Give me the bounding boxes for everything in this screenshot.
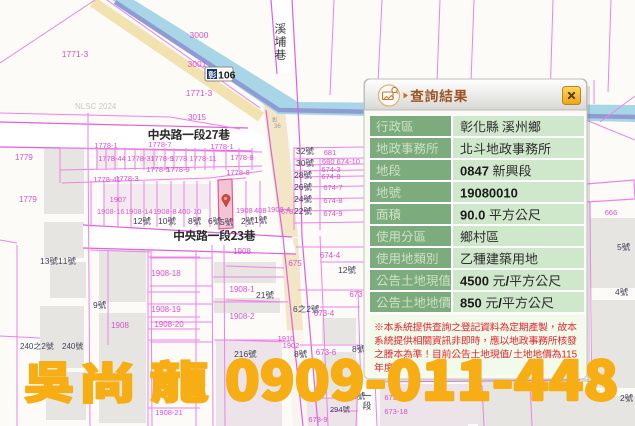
- svg-text:1908-18: 1908-18: [151, 269, 181, 278]
- svg-text:673: 673: [349, 290, 363, 299]
- svg-text:4: 4: [299, 194, 304, 204]
- svg-text:1778-44: 1778-44: [98, 154, 126, 163]
- svg-text:2: 2: [41, 342, 46, 351]
- svg-text:1908-2: 1908-2: [230, 312, 255, 321]
- svg-text:1908-16: 1908-16: [97, 207, 125, 216]
- svg-text:1778-3: 1778-3: [115, 174, 138, 183]
- svg-text:3001: 3001: [188, 59, 207, 69]
- svg-text:673-9: 673-9: [308, 415, 327, 424]
- svg-text:1908-21: 1908-21: [155, 408, 183, 417]
- svg-text:3000: 3000: [190, 30, 209, 40]
- svg-text:673-4: 673-4: [314, 309, 335, 318]
- svg-text:1779: 1779: [19, 195, 37, 204]
- svg-text:1778-1: 1778-1: [94, 141, 117, 150]
- svg-text:674-8: 674-8: [323, 196, 342, 205]
- svg-text:0: 0: [301, 158, 306, 168]
- svg-text:2: 2: [620, 393, 625, 403]
- svg-text:0847: 0847: [460, 164, 493, 179]
- svg-text:5: 5: [617, 242, 622, 252]
- svg-text:400-10: 400-10: [178, 207, 201, 216]
- svg-text:6: 6: [299, 182, 304, 192]
- svg-text:1778-9: 1778-9: [166, 165, 189, 174]
- svg-text:1778-11: 1778-11: [190, 154, 217, 163]
- svg-text:674-4: 674-4: [320, 251, 341, 260]
- svg-text:1778-7: 1778-7: [148, 140, 171, 149]
- svg-text:408: 408: [254, 206, 267, 215]
- svg-text:1908-1: 1908-1: [230, 285, 255, 294]
- svg-text:1: 1: [63, 256, 68, 266]
- svg-text:8: 8: [188, 216, 193, 226]
- svg-text:1907: 1907: [110, 195, 127, 204]
- svg-text:666: 666: [605, 208, 618, 217]
- svg-text:850: 850: [460, 296, 485, 311]
- svg-text:3015: 3015: [188, 113, 206, 122]
- svg-text:/: /: [509, 350, 512, 361]
- svg-text:NLSC 2024: NLSC 2024: [75, 102, 117, 111]
- svg-text:8: 8: [299, 170, 304, 180]
- svg-text:678: 678: [281, 207, 294, 216]
- svg-text:1: 1: [261, 290, 266, 300]
- svg-text:2: 2: [301, 146, 306, 156]
- svg-text:674-9: 674-9: [323, 209, 342, 218]
- svg-text:90.0: 90.0: [460, 208, 489, 223]
- svg-text:1908-19: 1908-19: [151, 305, 181, 314]
- svg-text:1908: 1908: [153, 207, 170, 216]
- svg-text:3: 3: [45, 256, 50, 266]
- svg-text:1908: 1908: [236, 206, 253, 215]
- svg-text:4: 4: [338, 405, 342, 414]
- svg-text:674-8: 674-8: [321, 172, 340, 181]
- svg-text:1778: 1778: [171, 154, 188, 163]
- svg-text:1771-3: 1771-3: [186, 88, 213, 98]
- svg-text:0: 0: [71, 342, 76, 351]
- svg-text:1: 1: [254, 215, 259, 225]
- svg-text:675: 675: [288, 259, 302, 268]
- svg-text:673-6: 673-6: [316, 348, 337, 357]
- svg-text:1908: 1908: [233, 247, 251, 256]
- svg-text:6: 6: [293, 304, 298, 314]
- svg-text:8: 8: [352, 344, 357, 354]
- svg-text:1908-14: 1908-14: [125, 207, 153, 216]
- svg-text:106: 106: [218, 70, 236, 82]
- svg-text:2: 2: [306, 304, 311, 314]
- svg-text:2: 2: [343, 265, 348, 275]
- svg-text:674-7: 674-7: [323, 183, 342, 192]
- svg-text:1771-3: 1771-3: [62, 49, 89, 59]
- svg-text:0: 0: [29, 342, 34, 351]
- svg-text:1778-1: 1778-1: [210, 142, 233, 151]
- svg-text:2: 2: [299, 206, 304, 216]
- svg-text:9: 9: [93, 300, 98, 310]
- svg-text:1778-8: 1778-8: [230, 153, 253, 162]
- svg-text:1908-20: 1908-20: [154, 320, 184, 329]
- svg-text:/: /: [498, 296, 502, 311]
- svg-text:673-18: 673-18: [384, 407, 407, 416]
- svg-text:2: 2: [241, 216, 246, 226]
- svg-text:681: 681: [324, 148, 337, 157]
- svg-text:4500: 4500: [460, 274, 493, 289]
- svg-text:彰: 彰: [272, 116, 278, 124]
- svg-text:-8: -8: [170, 207, 177, 216]
- svg-text:8: 8: [294, 349, 299, 359]
- svg-text:6: 6: [208, 216, 213, 226]
- svg-text:2: 2: [138, 216, 143, 226]
- svg-text:5: 5: [220, 217, 225, 227]
- svg-text:36: 36: [274, 124, 281, 130]
- svg-text:19080010: 19080010: [460, 186, 518, 201]
- svg-text:6: 6: [243, 349, 248, 359]
- svg-text:4: 4: [615, 287, 620, 297]
- svg-text:1908: 1908: [111, 321, 129, 330]
- svg-text:0: 0: [163, 216, 168, 226]
- svg-text:/: /: [506, 274, 510, 289]
- svg-text:1778-8: 1778-8: [226, 168, 249, 177]
- svg-text:1779: 1779: [15, 153, 33, 162]
